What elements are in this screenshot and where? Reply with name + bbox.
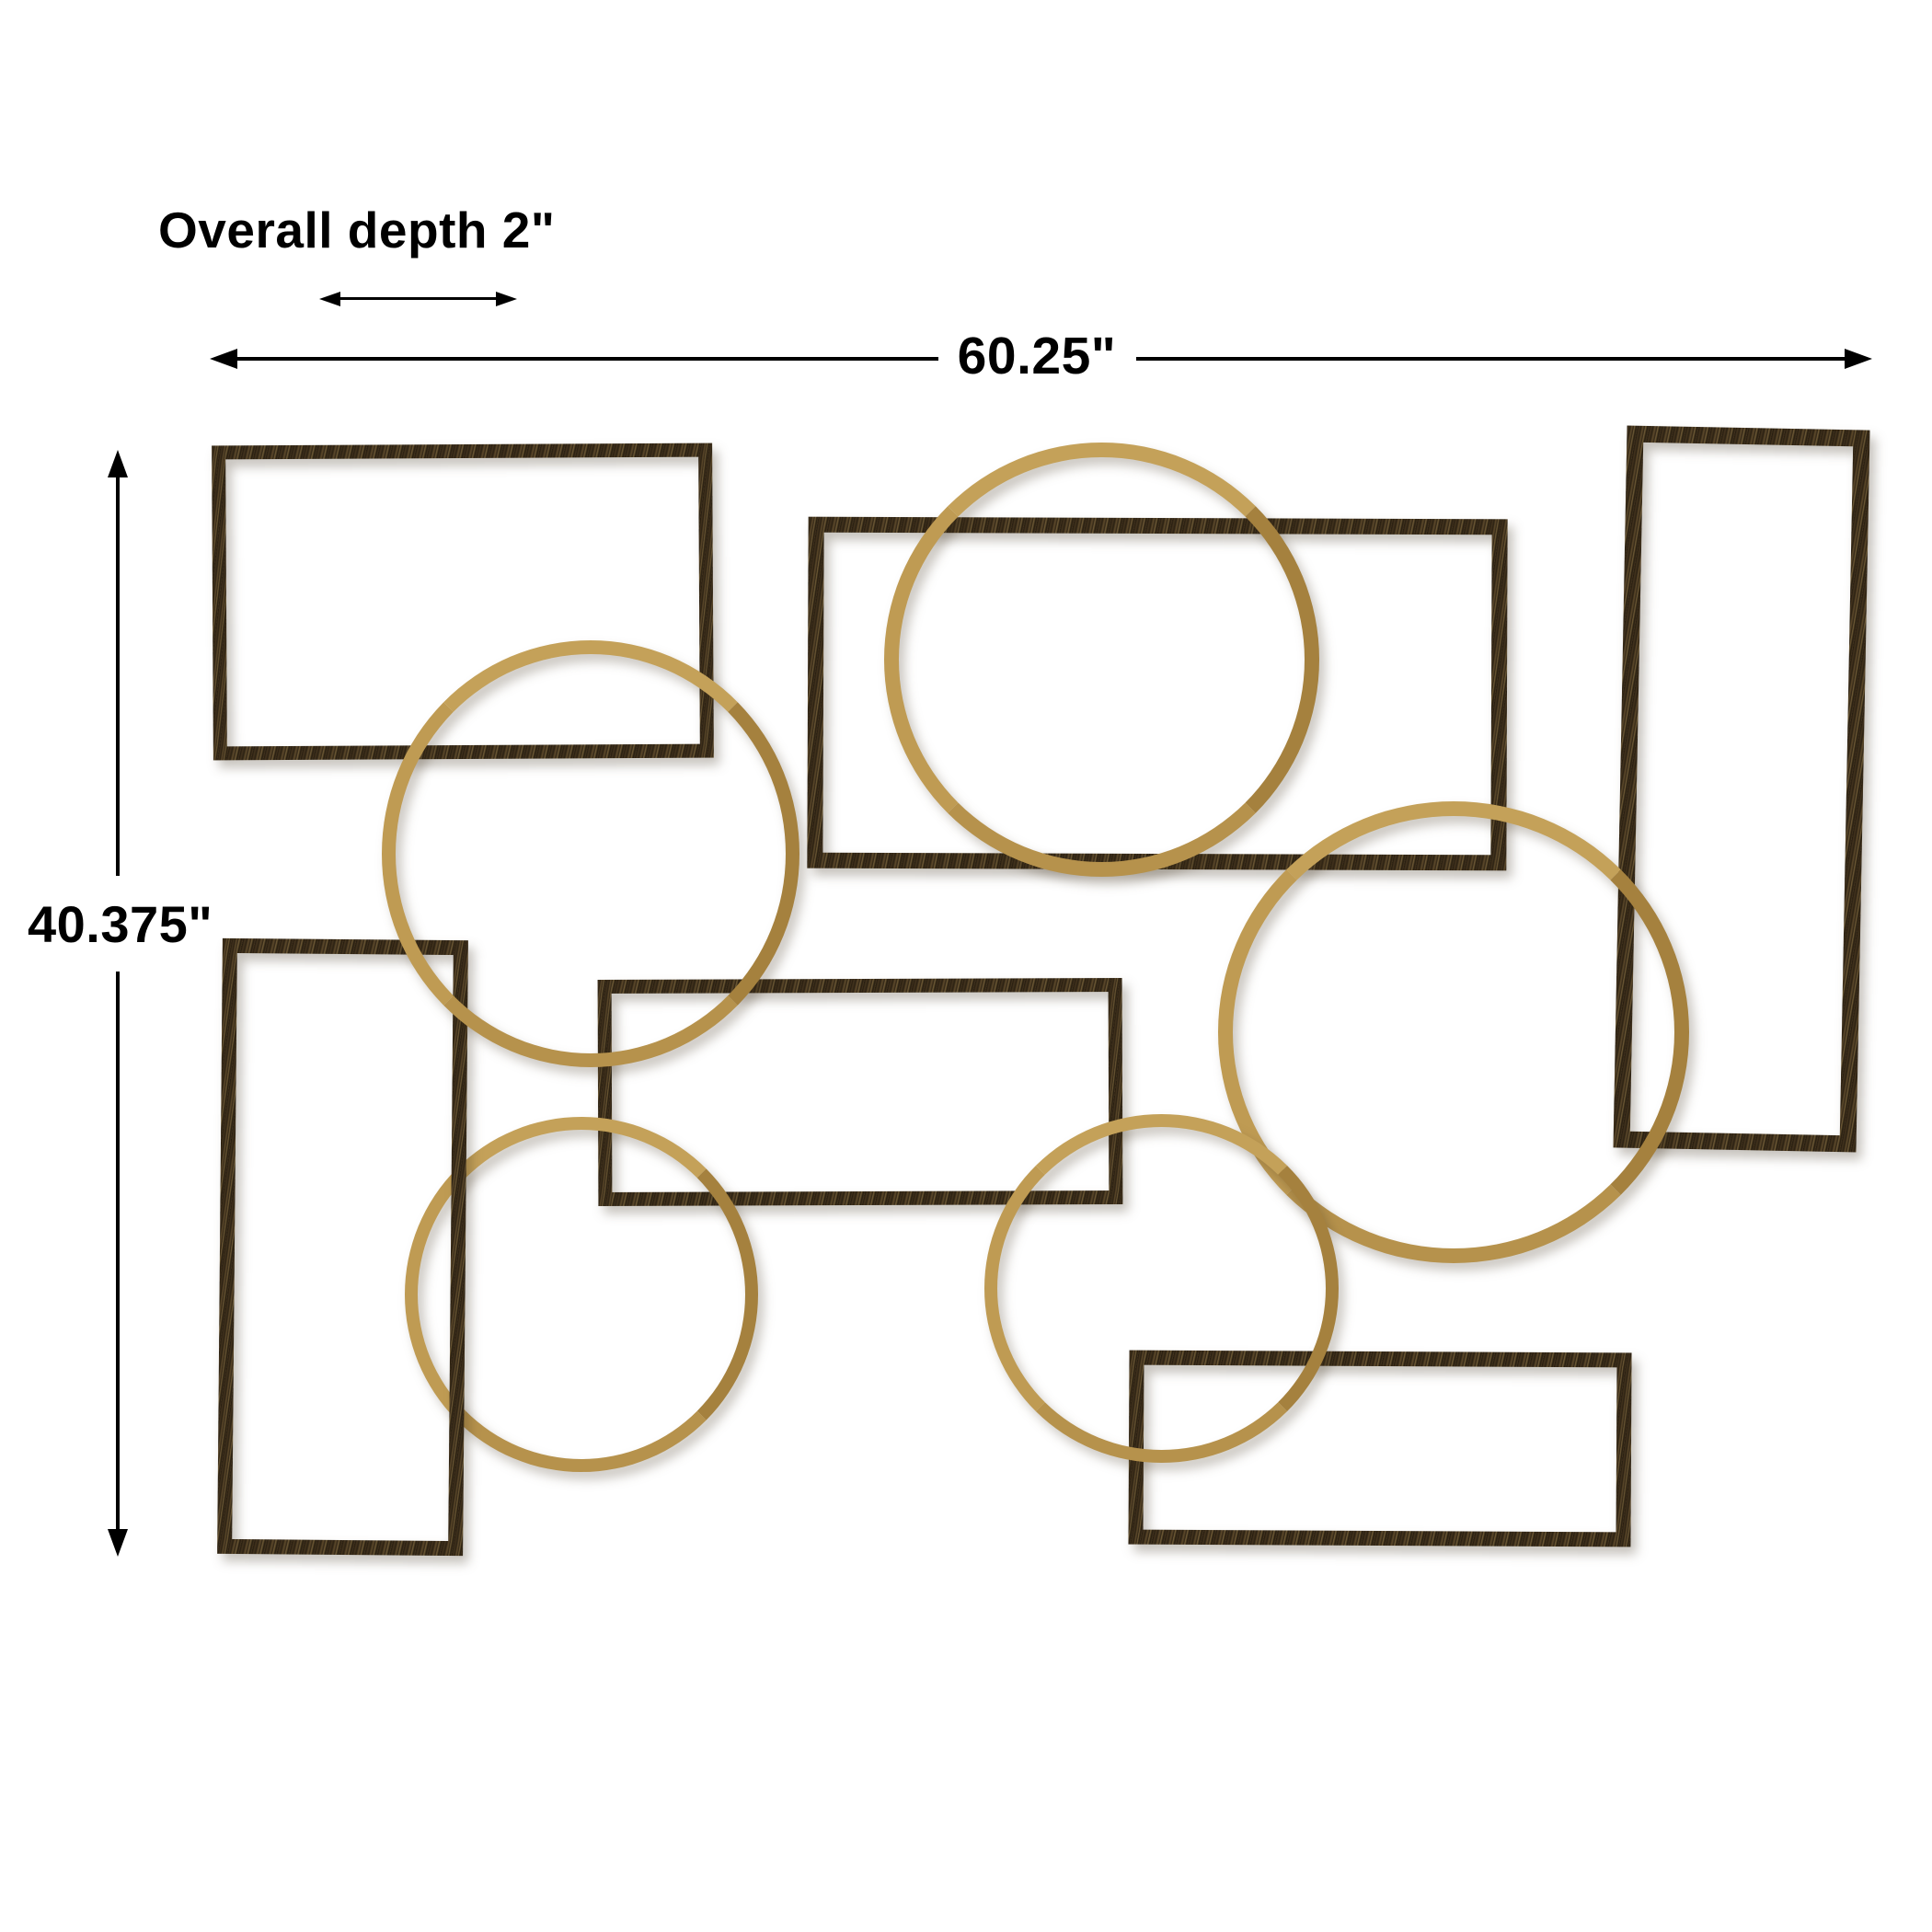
artwork: [0, 0, 1932, 1932]
gold-ring-top: [884, 443, 1319, 877]
bronze-frame-left: [217, 938, 468, 1556]
dimension-diagram: Overall depth 2" 60.25" 40.375": [0, 0, 1932, 1932]
gold-ring-bottom-middle: [984, 1114, 1339, 1463]
gold-ring-left: [382, 640, 799, 1067]
